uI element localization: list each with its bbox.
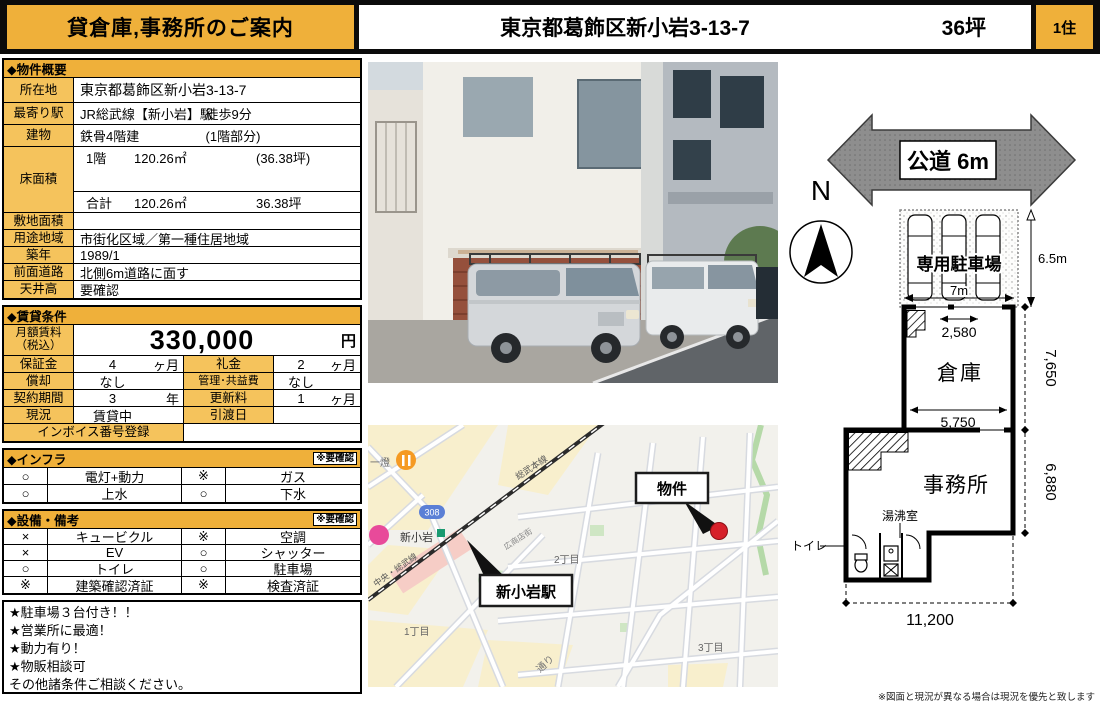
- unit: ヶ月: [147, 355, 179, 374]
- parking-label: 専用駐車場: [917, 254, 1002, 274]
- restaurant-icon-glyph: [402, 455, 405, 466]
- parking-depth-label: 6.5m: [1038, 251, 1067, 266]
- dim-7650: 7,650: [1042, 349, 1059, 387]
- row-value: 市街化区域／第一種住居地域: [74, 230, 360, 246]
- item-label: 上水: [48, 485, 182, 502]
- route-number: 308: [424, 508, 439, 518]
- table-row: ○ 上水 ○ 下水: [4, 485, 360, 502]
- status-mark: ※: [4, 577, 48, 593]
- parking-area: 専用駐車場 7m: [900, 210, 1018, 307]
- spec-panel: ◆物件概要 所在地 東京都葛飾区新小岩3-13-7 最寄り駅 JR総武線【新小岩…: [2, 58, 362, 694]
- photo-illustration: [368, 62, 778, 383]
- row-value: 賃貸中: [74, 407, 184, 423]
- remark-line: ★営業所に最適！: [9, 622, 355, 640]
- infra-section-header: ◆インフラ ※要確認: [4, 450, 360, 468]
- floor-plan: 公道 6m N 専用駐: [788, 58, 1100, 682]
- overview-table: ◆物件概要 所在地 東京都葛飾区新小岩3-13-7 最寄り駅 JR総武線【新小岩…: [2, 58, 362, 300]
- zoning-badge: 1住: [1031, 5, 1093, 49]
- district-label: 1丁目: [404, 627, 430, 638]
- row-label: 建物: [4, 125, 74, 146]
- table-row: 天井高 要確認: [4, 281, 360, 298]
- page-title: 貸倉庫,事務所のご案内: [7, 5, 359, 49]
- status-mark: ○: [182, 485, 226, 502]
- disclaimer: ※図面と現況が異なる場合は現況を優先と致します: [878, 689, 1095, 702]
- spacer: [74, 167, 360, 191]
- row-label: 所在地: [4, 78, 74, 102]
- flyer-page: 貸倉庫,事務所のご案内 東京都葛飾区新小岩3-13-7 36坪 1住 ◆物件概要…: [0, 0, 1100, 702]
- item-label: ガス: [226, 468, 360, 484]
- walk-minutes: 徒歩9分: [206, 104, 252, 123]
- row-label: 礼金: [184, 356, 274, 372]
- restaurant-icon-glyph: [408, 455, 411, 466]
- table-row: ※ 建築確認済証 ※ 検査済証: [4, 577, 360, 593]
- status-mark: ○: [4, 485, 48, 502]
- item-label: 電灯+動力: [48, 468, 182, 484]
- value: 4: [78, 357, 147, 372]
- row-value: [74, 213, 360, 229]
- invoice-row: インボイス番号登録: [4, 424, 360, 441]
- route-308-badge: 308: [419, 505, 445, 519]
- table-row: 償却 なし 管理･共益費 なし: [4, 373, 360, 390]
- row-value: 3年: [74, 390, 184, 406]
- row-label: 契約期間: [4, 390, 74, 406]
- row-label: 保証金: [4, 356, 74, 372]
- station-marker: [437, 529, 445, 537]
- row-label: 償却: [4, 373, 74, 389]
- item-label: EV: [48, 545, 182, 560]
- rent-table: ◆賃貸条件 月額賃料 （税込） 330,000 円 保証金 4ヶ月 礼金 2ヶ月…: [2, 305, 362, 443]
- restaurant-icon: [396, 450, 416, 470]
- north-letter: N: [811, 175, 831, 206]
- station-name: JR総武線【新小岩】駅: [80, 104, 213, 123]
- row-value: 北側6m道路に面す: [74, 264, 360, 280]
- item-label: 建築確認済証: [48, 577, 182, 593]
- table-row: 所在地 東京都葛飾区新小岩3-13-7: [4, 78, 360, 103]
- row-value: 東京都葛飾区新小岩3-13-7: [74, 78, 360, 102]
- van-2: [646, 255, 758, 349]
- table-row: 敷地面積: [4, 213, 360, 230]
- row-value: [184, 424, 360, 441]
- warehouse-label: 倉庫: [937, 362, 983, 385]
- item-label: 検査済証: [226, 577, 360, 593]
- status-mark: ※: [182, 577, 226, 593]
- row-value: なし: [74, 373, 184, 389]
- public-road-arrow: 公道 6m: [828, 115, 1075, 205]
- unit: 年: [147, 389, 179, 408]
- table-row: 最寄り駅 JR総武線【新小岩】駅 徒歩9分: [4, 103, 360, 125]
- item-label: トイレ: [48, 561, 182, 576]
- district-label: 2丁目: [554, 555, 580, 566]
- overview-section-header: ◆物件概要: [4, 60, 360, 78]
- row-value: なし: [274, 373, 360, 389]
- rent-section-header: ◆賃貸条件: [4, 307, 360, 325]
- row-label: インボイス番号登録: [4, 424, 184, 441]
- status-mark: ○: [182, 545, 226, 560]
- row-label: 月額賃料 （税込）: [4, 325, 74, 355]
- floor-name: 1階: [74, 148, 134, 167]
- remarks-box: ★駐車場３台付き！！ ★営業所に最適！ ★動力有り！ ★物販相談可 その他諸条件…: [2, 600, 362, 694]
- status-mark: ○: [4, 468, 48, 484]
- building-note: (1階部分): [206, 126, 261, 145]
- monthly-label-tax: （税込）: [16, 340, 62, 353]
- row-label: 天井高: [4, 281, 74, 298]
- kitchen-label: 湯沸室: [882, 508, 918, 523]
- property-callout: 物件: [657, 480, 687, 498]
- rent-unit: 円: [328, 330, 358, 351]
- table-row: 契約期間 3年 更新料 1ヶ月: [4, 390, 360, 407]
- map-illustration: 308 一燈 新小岩 総武本線 中央・総武線 広商店街 2丁目 1丁目 3丁目 …: [368, 425, 778, 687]
- header-bar: 貸倉庫,事務所のご案内 東京都葛飾区新小岩3-13-7 36坪 1住: [0, 0, 1100, 54]
- remark-line: ★駐車場３台付き！！: [9, 604, 355, 622]
- row-label: 床面積: [4, 147, 74, 212]
- row-value: 2ヶ月: [274, 356, 360, 372]
- dim-5750: 5,750: [940, 414, 975, 430]
- row-label: 敷地面積: [4, 213, 74, 229]
- row-label: 用途地域: [4, 230, 74, 246]
- table-row: ○ 電灯+動力 ※ ガス: [4, 468, 360, 485]
- status-mark: ※: [182, 529, 226, 544]
- equipment-table: ◆設備・備考 ※要確認 × キュービクル ※ 空調 × EV ○ シャッター ○…: [2, 509, 362, 595]
- infra-note: ※要確認: [313, 452, 357, 465]
- table-row: 用途地域 市街化区域／第一種住居地域: [4, 230, 360, 247]
- property-photo: [368, 62, 778, 383]
- row-label: 引渡日: [184, 407, 274, 423]
- office-label: 事務所: [923, 474, 989, 497]
- table-row: 保証金 4ヶ月 礼金 2ヶ月: [4, 356, 360, 373]
- value: なし: [78, 372, 147, 391]
- row-label: 管理･共益費: [184, 373, 274, 389]
- north-compass: N: [790, 175, 852, 283]
- row-value: JR総武線【新小岩】駅 徒歩9分: [74, 103, 360, 124]
- status-mark: ※: [182, 468, 226, 484]
- total-tsubo: 36.38坪: [256, 193, 360, 212]
- table-row: 前面道路 北側6m道路に面す: [4, 264, 360, 281]
- item-label: 駐車場: [226, 561, 360, 576]
- row-value: 4ヶ月: [74, 356, 184, 372]
- property-address: 東京都葛飾区新小岩3-13-7: [439, 12, 811, 42]
- item-label: シャッター: [226, 545, 360, 560]
- poi-label: 一燈: [370, 457, 390, 469]
- row-value: 1ヶ月: [274, 390, 360, 406]
- row-label: 現況: [4, 407, 74, 423]
- total-name: 合計: [74, 193, 134, 212]
- poi-icon-pink: [369, 525, 389, 545]
- floor-sqm: 120.26㎡: [134, 148, 256, 167]
- equipment-title: ◆設備・備考: [7, 510, 79, 529]
- dim-6880: 6,880: [1042, 463, 1059, 501]
- floor-tsubo: (36.38坪): [256, 148, 360, 167]
- row-label: 更新料: [184, 390, 274, 406]
- row-value: [274, 407, 360, 423]
- floor-plan-drawing: 公道 6m N 専用駐: [788, 58, 1100, 682]
- status-mark: ×: [4, 545, 48, 560]
- row-label: 最寄り駅: [4, 103, 74, 124]
- value: 2: [278, 357, 324, 372]
- unit: ヶ月: [324, 355, 356, 374]
- road-label: 公道 6m: [907, 149, 989, 174]
- floor-total-row: 合計 120.26㎡ 36.38坪: [74, 191, 360, 212]
- status-mark: ×: [4, 529, 48, 544]
- dim-11200: 11,200: [906, 612, 954, 629]
- value: 賃貸中: [78, 406, 147, 425]
- building-structure: 鉄骨4階建: [80, 126, 139, 145]
- table-row: 建物 鉄骨4階建 (1階部分): [4, 125, 360, 147]
- status-mark: ○: [4, 561, 48, 576]
- floor-row: 1階 120.26㎡ (36.38坪): [74, 147, 360, 167]
- row-value: 要確認: [74, 281, 360, 298]
- station-label: 新小岩: [400, 530, 433, 544]
- floor-area-cell: 1階 120.26㎡ (36.38坪) 合計 120.26㎡ 36.38坪: [74, 147, 360, 212]
- overview-title: ◆物件概要: [7, 59, 67, 78]
- table-row: 現況 賃貸中 引渡日: [4, 407, 360, 424]
- dim-2580: 2,580: [941, 324, 976, 340]
- rent-amount: 330,000: [76, 325, 328, 356]
- building-outline: [846, 307, 1013, 580]
- row-value: 鉄骨4階建 (1階部分): [74, 125, 360, 146]
- unit: ヶ月: [324, 389, 356, 408]
- equipment-note: ※要確認: [313, 513, 357, 526]
- item-label: キュービクル: [48, 529, 182, 544]
- value: 1: [278, 391, 324, 406]
- monthly-label: 月額賃料: [16, 327, 62, 340]
- parking-width-dim: 7m: [950, 283, 968, 298]
- item-label: 下水: [226, 485, 360, 502]
- value: 3: [78, 391, 147, 406]
- infra-title: ◆インフラ: [7, 449, 66, 468]
- remark-line: ★動力有り！: [9, 640, 355, 658]
- remark-line: その他諸条件ご相談ください。: [9, 676, 355, 694]
- area-tsubo: 36坪: [942, 12, 986, 42]
- row-label: 前面道路: [4, 264, 74, 280]
- monthly-amount-cell: 330,000 円: [74, 325, 360, 355]
- infra-table: ◆インフラ ※要確認 ○ 電灯+動力 ※ ガス ○ 上水 ○ 下水: [2, 448, 362, 504]
- total-sqm: 120.26㎡: [134, 193, 256, 212]
- area-map: 308 一燈 新小岩 総武本線 中央・総武線 広商店街 2丁目 1丁目 3丁目 …: [368, 425, 778, 687]
- station-callout-label: 新小岩駅: [496, 583, 557, 601]
- rent-title: ◆賃貸条件: [7, 306, 67, 325]
- remark-line: ★物販相談可: [9, 658, 355, 676]
- equipment-section-header: ◆設備・備考 ※要確認: [4, 511, 360, 529]
- value: なし: [278, 372, 324, 391]
- table-row: 築年 1989/1: [4, 247, 360, 264]
- row-label: 築年: [4, 247, 74, 263]
- header-address-cell: 東京都葛飾区新小岩3-13-7 36坪: [359, 5, 1031, 49]
- item-label: 空調: [226, 529, 360, 544]
- monthly-rent-row: 月額賃料 （税込） 330,000 円: [4, 325, 360, 356]
- status-mark: ○: [182, 561, 226, 576]
- district-label: 3丁目: [698, 643, 724, 654]
- parking-depth-dim: 6.5m: [1027, 210, 1067, 307]
- table-row: 床面積 1階 120.26㎡ (36.38坪) 合計 120.26㎡ 36.38…: [4, 147, 360, 213]
- row-value: 1989/1: [74, 247, 360, 263]
